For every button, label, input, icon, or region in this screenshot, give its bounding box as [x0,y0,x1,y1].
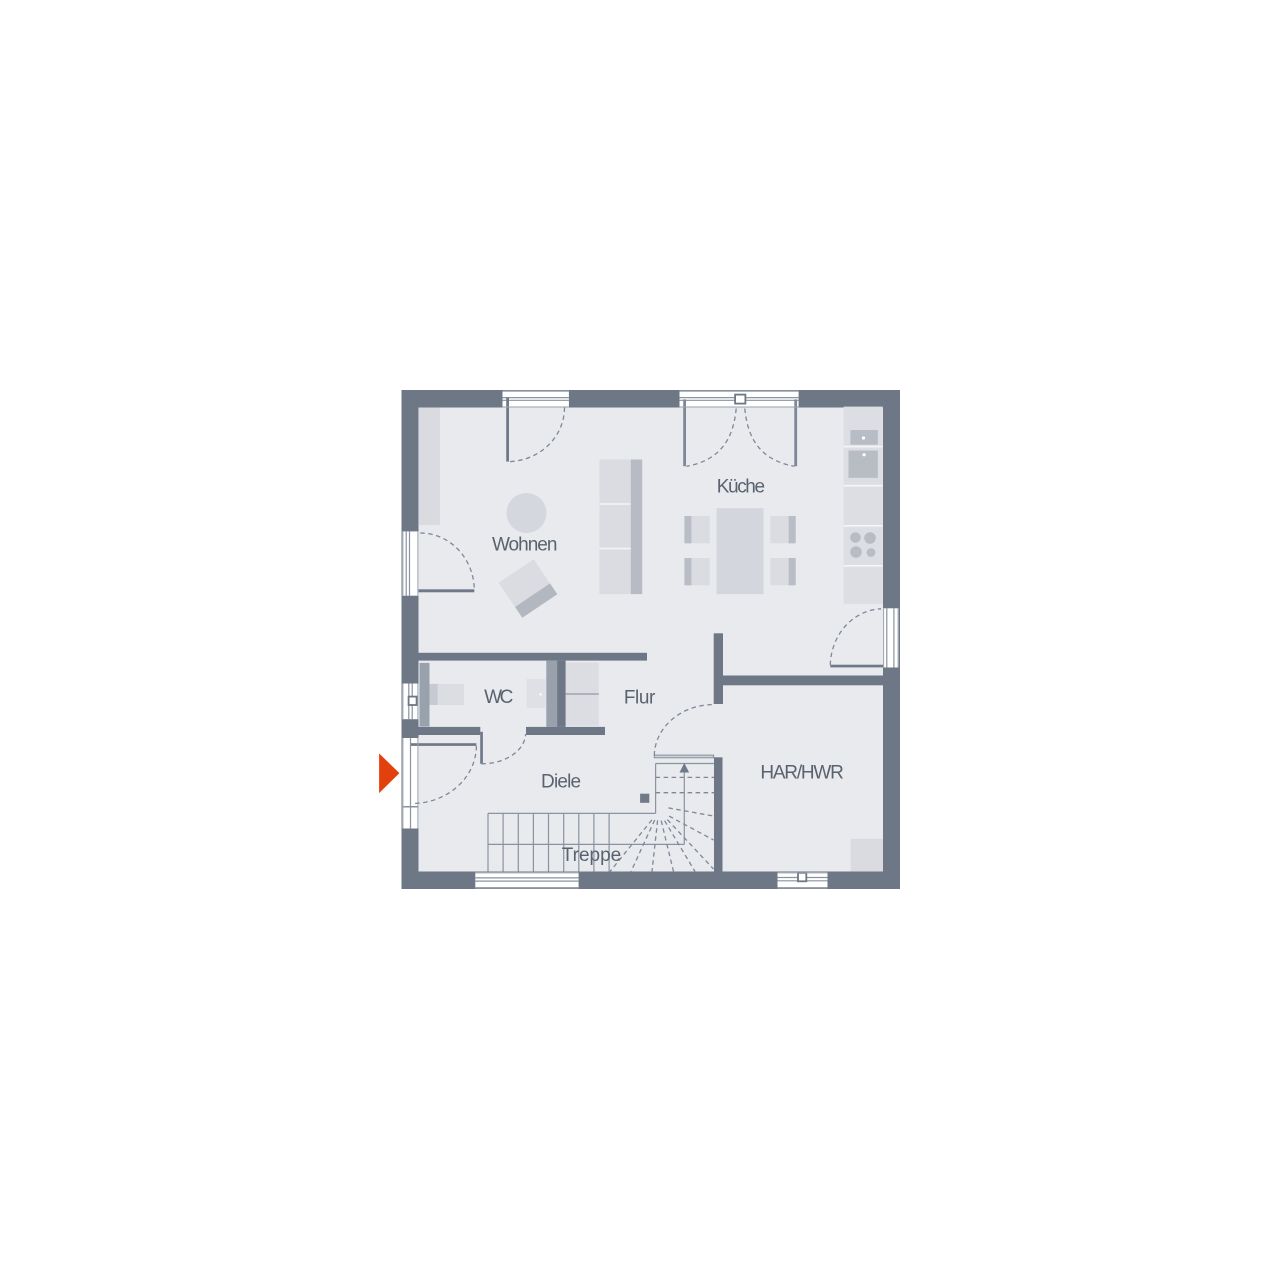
svg-text:WC: WC [484,687,512,708]
svg-text:Diele: Diele [541,771,581,792]
svg-text:HAR/HWR: HAR/HWR [760,763,843,784]
svg-text:Küche: Küche [717,476,765,497]
svg-text:Flur: Flur [624,688,656,709]
svg-text:Wohnen: Wohnen [492,535,557,556]
svg-text:Treppe: Treppe [562,845,622,866]
